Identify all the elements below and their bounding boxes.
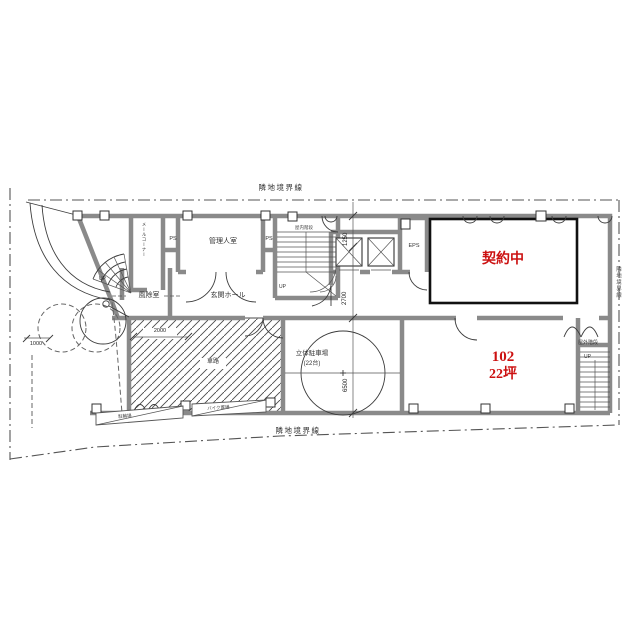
label-manager-room: 管理人室	[192, 238, 254, 246]
floor-plan: 隣地境界線 隣地境界線 隣地境界線 管理人室 PS PS EPS 屋内階段 メー…	[0, 0, 630, 630]
label-ps-1: PS	[166, 236, 180, 242]
label-entrance-hall: 玄関ホール	[192, 292, 264, 300]
dimension-6500: 6500	[343, 379, 350, 392]
label-up-entrance: UP	[99, 277, 106, 283]
turntable-circle	[285, 331, 400, 415]
dimension-2700: 2700	[342, 292, 349, 305]
floor-plan-drawing	[0, 0, 630, 630]
label-eps: EPS	[403, 243, 425, 249]
dimension-1000: 1000	[24, 341, 48, 347]
label-driveway: 車路	[200, 359, 226, 366]
label-parking-capacity: (22台)	[282, 361, 342, 368]
label-up-indoor: UP	[279, 285, 286, 291]
label-ps-2: PS	[262, 236, 276, 242]
label-indoor-stairs: 屋内階段	[283, 226, 325, 231]
label-up-outdoor: UP	[584, 355, 591, 361]
label-unit-number: 102	[455, 349, 551, 366]
label-contracted: 契約中	[436, 252, 570, 267]
label-parking: 立体駐車場	[282, 350, 342, 357]
label-bicycle-parking: 駐輪場	[118, 414, 132, 420]
dimension-1250: 1250	[343, 233, 350, 246]
boundary-label-bottom: 隣地境界線	[258, 427, 338, 435]
outdoor-stairs-icon	[580, 352, 610, 410]
label-windbreak-room: 風除室	[126, 292, 172, 300]
label-mail-corner: メールコーナー	[141, 222, 146, 288]
label-unit-area: 22坪	[455, 367, 551, 382]
boundary-label-top: 隣地境界線	[243, 184, 319, 192]
boundary-label-right: 隣地境界線	[615, 266, 621, 326]
label-outdoor-stairs: 屋外階段	[566, 341, 610, 347]
dimension-2000: 2000	[145, 328, 175, 334]
